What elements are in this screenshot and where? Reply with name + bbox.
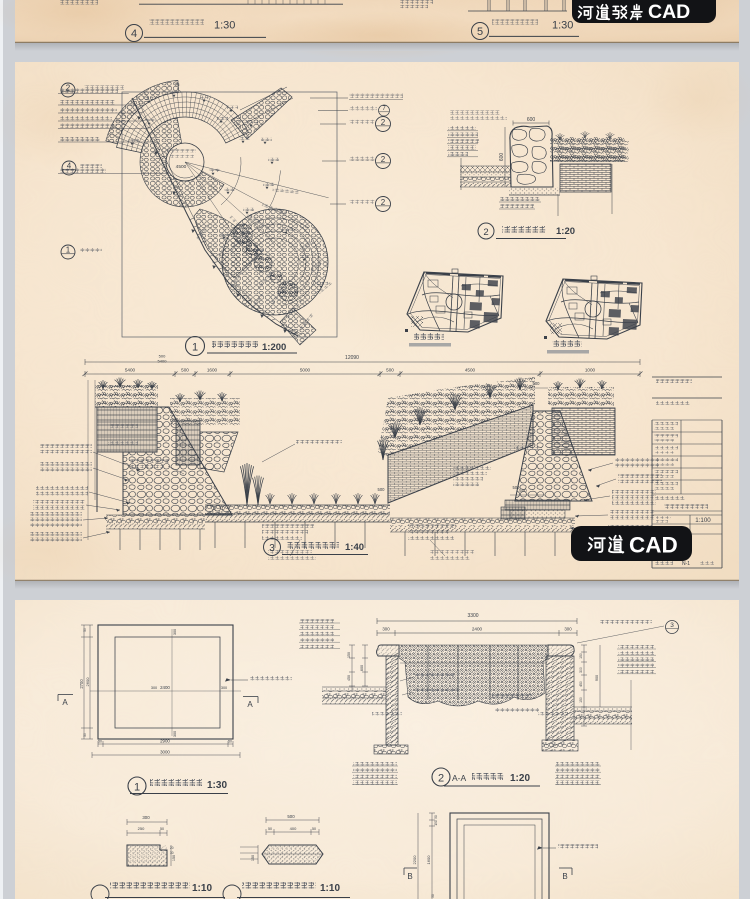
svg-text:2400: 2400: [472, 627, 483, 632]
svg-text:12090: 12090: [345, 355, 359, 361]
svg-text:4: 4: [131, 28, 137, 40]
svg-text:150: 150: [579, 697, 583, 703]
svg-text:1:30: 1:30: [207, 780, 227, 791]
svg-text:1:30: 1:30: [552, 20, 573, 32]
svg-text:4: 4: [67, 162, 72, 171]
svg-text:150: 150: [579, 653, 583, 659]
svg-text:50: 50: [228, 740, 232, 744]
svg-text:N-1: N-1: [682, 561, 690, 567]
svg-text:400: 400: [290, 826, 297, 831]
svg-text:30: 30: [170, 851, 174, 855]
svg-text:600: 600: [360, 665, 364, 671]
svg-text:5: 5: [477, 26, 483, 38]
svg-text:2: 2: [381, 198, 386, 207]
svg-text:B: B: [562, 872, 567, 881]
svg-text:1600: 1600: [207, 368, 218, 373]
svg-text:300: 300: [564, 627, 572, 632]
svg-text:1:20: 1:20: [556, 226, 575, 237]
svg-text:2400: 2400: [160, 685, 170, 690]
svg-text:50: 50: [312, 827, 316, 831]
svg-text:900: 900: [595, 675, 599, 681]
svg-text:50: 50: [268, 827, 272, 831]
svg-text:A: A: [62, 698, 68, 707]
svg-text:300: 300: [579, 667, 583, 673]
svg-text:4500: 4500: [176, 164, 187, 170]
svg-text:B: B: [407, 872, 412, 881]
svg-text:A-A: A-A: [452, 773, 467, 783]
svg-text:150: 150: [251, 855, 255, 861]
svg-text:1:100: 1:100: [695, 517, 711, 524]
svg-text:75: 75: [174, 82, 180, 87]
svg-text:4500: 4500: [465, 368, 476, 373]
svg-text:250: 250: [138, 826, 145, 831]
svg-text:1: 1: [134, 782, 140, 794]
svg-text:500: 500: [533, 381, 541, 386]
svg-text:50: 50: [160, 827, 164, 831]
svg-text:50: 50: [434, 815, 438, 819]
svg-text:1:10: 1:10: [192, 883, 212, 894]
svg-text:300: 300: [382, 627, 390, 632]
svg-text:5400: 5400: [125, 368, 136, 373]
svg-text:5000: 5000: [300, 368, 311, 373]
svg-text:450: 450: [347, 675, 351, 681]
svg-text:50: 50: [431, 894, 435, 898]
svg-text:150: 150: [172, 855, 176, 861]
svg-text:5400: 5400: [158, 359, 168, 364]
svg-text:500: 500: [287, 814, 295, 819]
svg-text:CAD: CAD: [629, 533, 678, 558]
svg-text:1600: 1600: [426, 855, 431, 865]
svg-text:3: 3: [670, 622, 674, 629]
svg-text:3000: 3000: [160, 750, 170, 755]
svg-text:2700: 2700: [79, 679, 84, 689]
svg-text:300: 300: [151, 686, 157, 690]
svg-text:A: A: [247, 700, 253, 709]
svg-text:50: 50: [98, 740, 102, 744]
svg-text:1:10: 1:10: [320, 883, 340, 894]
svg-text:1:20: 1:20: [510, 773, 530, 784]
svg-text:2: 2: [381, 155, 386, 164]
svg-text:150: 150: [434, 820, 438, 826]
svg-text:600: 600: [527, 117, 536, 123]
svg-text:300: 300: [173, 731, 177, 737]
svg-text:500: 500: [519, 488, 527, 493]
svg-text:1:200: 1:200: [262, 342, 286, 353]
svg-text:300: 300: [142, 815, 150, 820]
svg-text:450: 450: [579, 681, 583, 687]
svg-text:300: 300: [221, 686, 227, 690]
svg-text:300: 300: [173, 629, 177, 635]
svg-text:1:40: 1:40: [345, 542, 364, 553]
svg-text:20: 20: [170, 846, 174, 850]
svg-text:2: 2: [66, 84, 71, 93]
svg-text:2600: 2600: [85, 677, 90, 687]
svg-text:2: 2: [438, 773, 444, 785]
svg-text:500: 500: [181, 368, 189, 373]
svg-text:CAD: CAD: [648, 1, 690, 23]
svg-text:2: 2: [483, 227, 488, 238]
svg-text:1: 1: [66, 246, 71, 255]
svg-text:500: 500: [378, 487, 386, 492]
svg-text:50: 50: [83, 628, 87, 632]
svg-text:500: 500: [386, 368, 394, 373]
svg-text:600: 600: [499, 153, 505, 162]
svg-text:1000: 1000: [585, 368, 596, 373]
svg-text:500: 500: [513, 485, 521, 490]
svg-text:2900: 2900: [160, 739, 170, 744]
svg-text:3: 3: [269, 543, 275, 554]
svg-text:1: 1: [192, 342, 198, 354]
svg-text:2200: 2200: [412, 855, 417, 865]
svg-text:3300: 3300: [467, 613, 478, 619]
svg-text:2: 2: [381, 118, 386, 127]
svg-text:150: 150: [347, 652, 351, 658]
svg-text:50: 50: [83, 733, 87, 737]
svg-text:1:30: 1:30: [214, 20, 235, 32]
